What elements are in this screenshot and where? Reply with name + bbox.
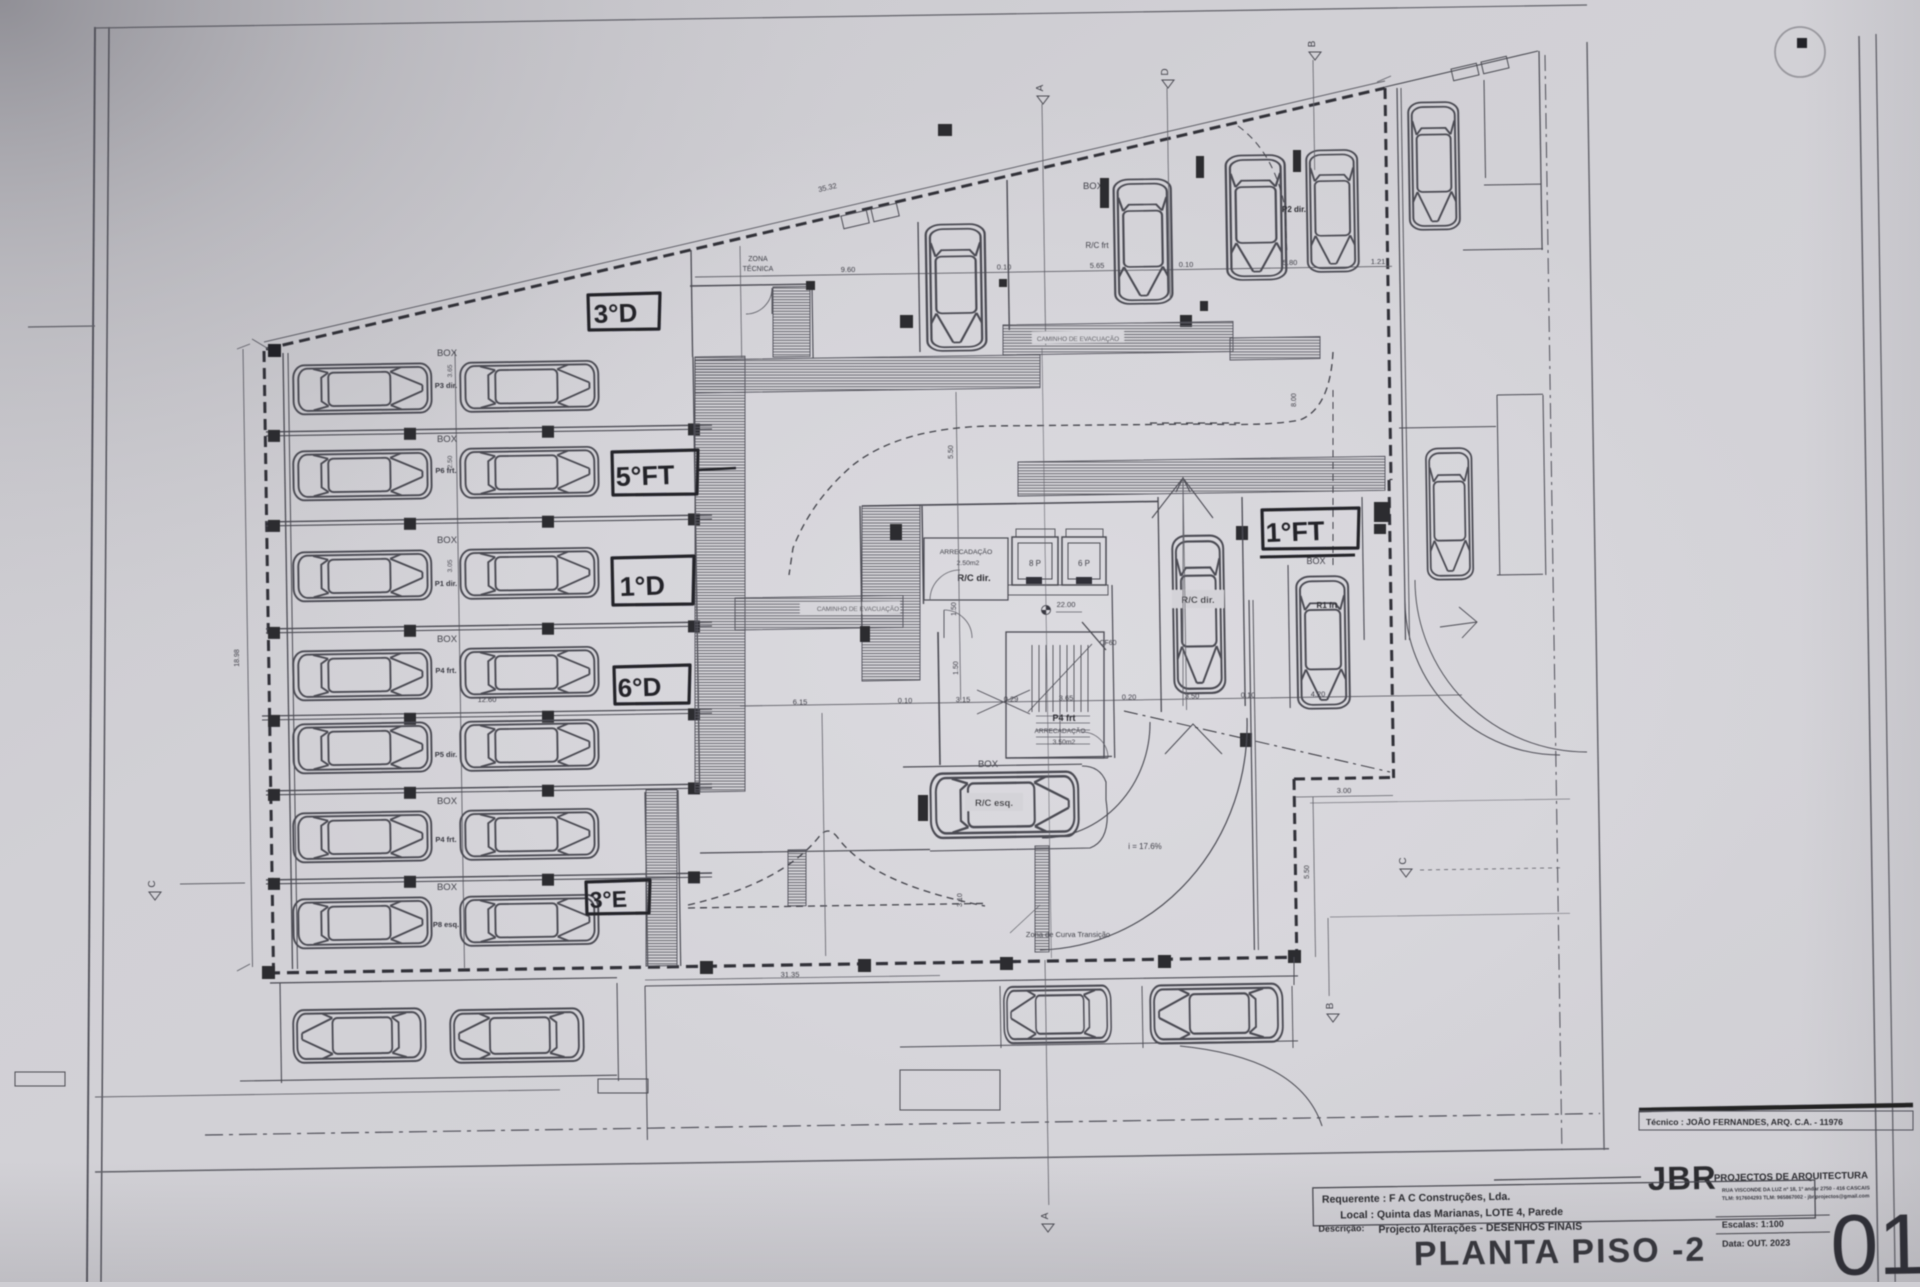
svg-text:BOX: BOX	[1306, 556, 1325, 566]
svg-text:Zona de Curva Transição: Zona de Curva Transição	[1026, 930, 1110, 939]
svg-text:BOX: BOX	[437, 434, 458, 445]
svg-text:PLANTA PISO -2: PLANTA PISO -2	[1414, 1231, 1707, 1274]
svg-text:B: B	[1325, 1002, 1336, 1009]
svg-text:3°D: 3°D	[593, 297, 638, 329]
svg-text:3.50: 3.50	[1185, 692, 1200, 701]
svg-text:BOX: BOX	[978, 759, 999, 770]
svg-text:P5 dir.: P5 dir.	[435, 750, 458, 759]
svg-text:5°FT: 5°FT	[615, 460, 675, 492]
svg-text:8.00: 8.00	[1291, 393, 1298, 407]
svg-text:8 P: 8 P	[1029, 559, 1041, 568]
svg-text:C: C	[1398, 857, 1409, 864]
svg-text:5.50: 5.50	[1304, 865, 1311, 879]
svg-text:C: C	[147, 880, 158, 887]
svg-text:1.50: 1.50	[953, 661, 960, 675]
svg-text:3.10: 3.10	[957, 893, 964, 907]
svg-text:D: D	[1160, 68, 1171, 75]
svg-text:CAMINHO DE EVACUAÇÃO: CAMINHO DE EVACUAÇÃO	[817, 604, 899, 613]
svg-text:i = 17.6%: i = 17.6%	[1128, 842, 1162, 851]
svg-text:0.20: 0.20	[1122, 692, 1137, 701]
svg-text:4.20: 4.20	[1311, 690, 1326, 699]
svg-text:Escalas: 1:100: Escalas: 1:100	[1722, 1219, 1784, 1230]
svg-text:01: 01	[1830, 1196, 1920, 1282]
svg-text:0.10: 0.10	[997, 263, 1012, 272]
svg-text:1°FT: 1°FT	[1265, 516, 1325, 548]
svg-text:5.50: 5.50	[948, 445, 955, 459]
svg-text:6 P: 6 P	[1078, 559, 1090, 568]
svg-text:0.10: 0.10	[1179, 260, 1194, 269]
svg-text:3.05: 3.05	[447, 559, 454, 572]
svg-text:Data: OUT. 2023: Data: OUT. 2023	[1722, 1238, 1790, 1249]
svg-text:R/C dir.: R/C dir.	[957, 573, 990, 584]
svg-text:0.10: 0.10	[1241, 691, 1256, 700]
svg-text:B: B	[1307, 40, 1318, 47]
svg-text:3.65: 3.65	[1059, 693, 1074, 702]
svg-text:BOX: BOX	[437, 796, 458, 807]
svg-text:P4 frt.: P4 frt.	[435, 835, 456, 844]
svg-text:0.10: 0.10	[898, 696, 913, 705]
svg-text:5.80: 5.80	[1283, 258, 1298, 267]
svg-text:P4 frt.: P4 frt.	[435, 666, 456, 675]
svg-text:R/C dir.: R/C dir.	[1181, 595, 1214, 606]
svg-text:3°E: 3°E	[589, 886, 627, 913]
svg-text:BOX: BOX	[437, 882, 458, 893]
svg-text:5.65: 5.65	[1090, 261, 1105, 270]
svg-text:9.60: 9.60	[841, 265, 856, 274]
svg-text:TÉCNICA: TÉCNICA	[743, 264, 774, 273]
svg-text:A: A	[1035, 84, 1046, 91]
svg-text:R1 frt: R1 frt	[1317, 601, 1338, 610]
svg-text:6°D: 6°D	[617, 671, 662, 703]
svg-text:18.98: 18.98	[234, 649, 241, 667]
svg-text:3.15: 3.15	[956, 695, 971, 704]
svg-text:ARRECADAÇÃO: ARRECADAÇÃO	[940, 547, 993, 556]
svg-text:31.35: 31.35	[781, 970, 800, 979]
svg-text:3.65: 3.65	[447, 364, 454, 377]
svg-text:ARRECADAÇÃO: ARRECADAÇÃO	[1035, 726, 1086, 735]
svg-text:0.29: 0.29	[1004, 694, 1019, 703]
svg-text:A: A	[1040, 1212, 1051, 1219]
svg-text:BOX: BOX	[437, 348, 458, 359]
svg-text:BOX: BOX	[437, 535, 458, 546]
svg-text:1.21: 1.21	[1371, 257, 1386, 266]
svg-text:2.50m2: 2.50m2	[957, 560, 980, 567]
svg-text:2.50: 2.50	[447, 455, 454, 468]
svg-text:R/C esq.: R/C esq.	[975, 798, 1013, 809]
svg-text:P1 dir.: P1 dir.	[435, 579, 458, 588]
svg-text:P3 dir.: P3 dir.	[435, 381, 458, 390]
svg-text:1.50: 1.50	[951, 602, 958, 616]
svg-text:R/C frt: R/C frt	[1085, 241, 1109, 250]
svg-text:12.60: 12.60	[478, 695, 497, 704]
svg-text:JBR: JBR	[1647, 1159, 1717, 1197]
svg-text:P8 esq.: P8 esq.	[433, 920, 459, 929]
svg-text:22.00: 22.00	[1057, 600, 1076, 609]
svg-text:P4 frt: P4 frt	[1052, 713, 1075, 723]
svg-text:Descrição:: Descrição:	[1318, 1223, 1364, 1234]
svg-text:Técnico : JOÃO FERNANDES, ARQ.: Técnico : JOÃO FERNANDES, ARQ. C.A. - 11…	[1646, 1117, 1843, 1127]
svg-text:CAMINHO DE EVACUAÇÃO: CAMINHO DE EVACUAÇÃO	[1037, 334, 1119, 343]
svg-text:ZONA: ZONA	[748, 256, 768, 263]
svg-text:BOX: BOX	[437, 634, 458, 645]
svg-text:3.50m2: 3.50m2	[1053, 739, 1076, 746]
svg-text:6.15: 6.15	[793, 698, 808, 707]
svg-text:1°D: 1°D	[619, 570, 665, 602]
svg-text:3.00: 3.00	[1337, 786, 1352, 795]
